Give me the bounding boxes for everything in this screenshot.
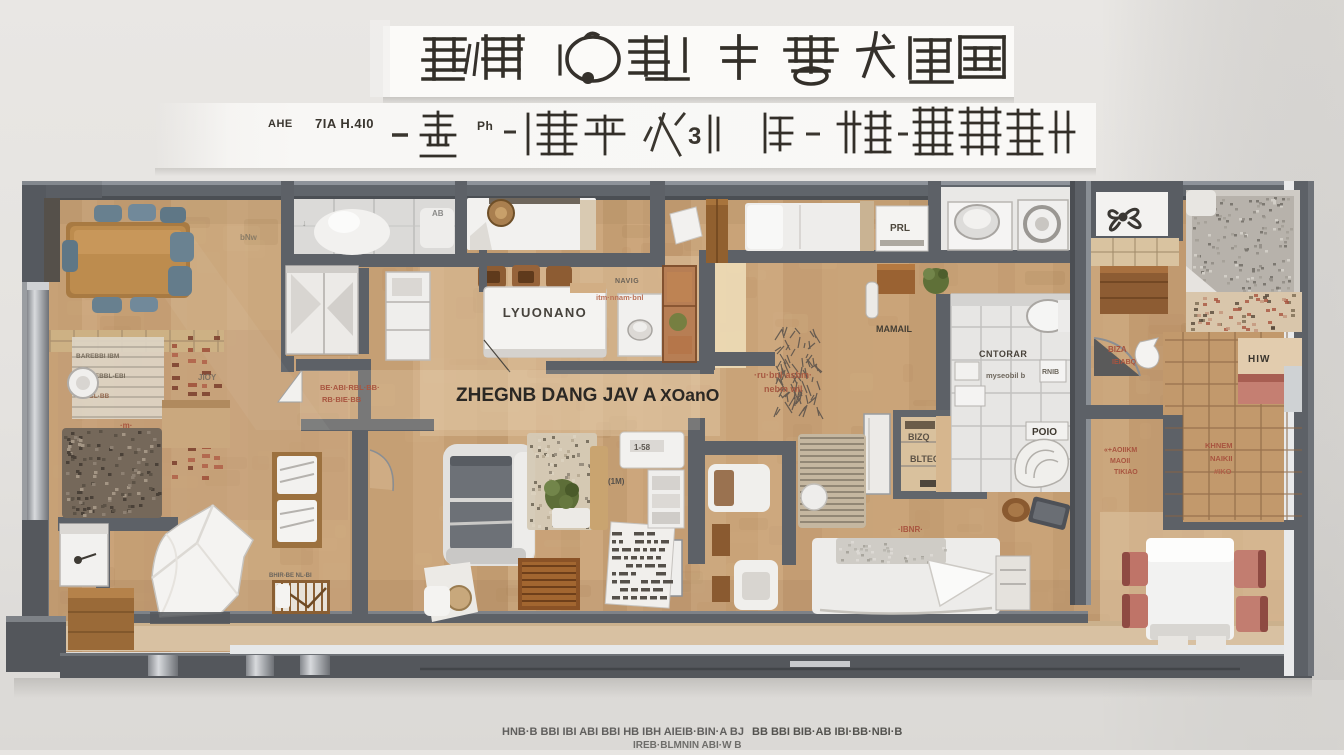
svg-text:nebm wil: nebm wil: [764, 384, 803, 394]
svg-text:·m·: ·m·: [120, 421, 132, 430]
svg-text:BE·ABI·RBL·BB·: BE·ABI·RBL·BB·: [320, 383, 380, 392]
svg-text:POIO: POIO: [1032, 427, 1057, 438]
svg-text:bNw: bNw: [240, 233, 258, 242]
svg-text:·ru·bnl·asbm·: ·ru·bnl·asbm·: [754, 370, 812, 380]
svg-text:1-58: 1-58: [634, 443, 651, 452]
svg-text:·IBNR·: ·IBNR·: [898, 525, 923, 534]
svg-text:PRL: PRL: [890, 223, 910, 234]
svg-text:JIOY: JIOY: [198, 373, 217, 382]
svg-text:↓: ↓: [302, 218, 307, 228]
svg-text:HNB·B BBI IBI ABI BBI HB IBH A: HNB·B BBI IBI ABI BBI HB IBH AIEIB·BIN·A…: [502, 726, 744, 738]
svg-text:RB·BIE·BB: RB·BIE·BB: [322, 395, 362, 404]
svg-text:AHE: AHE: [268, 118, 293, 130]
svg-text:IREB·BLMNIN ABI·W B: IREB·BLMNIN ABI·W B: [633, 740, 742, 750]
svg-text:KHNEM: KHNEM: [1205, 441, 1233, 450]
svg-text:IEIABQ: IEIABQ: [1112, 359, 1137, 366]
svg-text:BAREBBI IBM: BAREBBI IBM: [76, 353, 119, 360]
svg-text:BHIR-BE NL-BI: BHIR-BE NL-BI: [269, 573, 312, 579]
svg-text:#IKO: #IKO: [1214, 467, 1232, 476]
svg-text:NAVIG: NAVIG: [615, 278, 639, 285]
svg-text:MAOII: MAOII: [1110, 458, 1130, 465]
svg-text:«+AOIIKM: «+AOIIKM: [1104, 447, 1137, 454]
svg-text:(1M): (1M): [608, 477, 625, 486]
svg-text:itm·nnam·bnl: itm·nnam·bnl: [596, 293, 644, 302]
svg-text:3: 3: [688, 123, 701, 150]
svg-text:RNIB: RNIB: [1042, 369, 1059, 376]
svg-text:XOanO: XOanO: [660, 385, 719, 405]
svg-text:ZHEGNB DANG JAV A: ZHEGNB DANG JAV A: [456, 385, 657, 406]
svg-text:CNTORAR: CNTORAR: [979, 349, 1027, 359]
svg-text:NAIKII: NAIKII: [1210, 454, 1233, 463]
svg-text:HIW: HIW: [1248, 354, 1270, 365]
svg-text:BB BBI BIB·AB IBI·BB·NBI·B: BB BBI BIB·AB IBI·BB·NBI·B: [752, 726, 902, 738]
svg-text:BLTEO: BLTEO: [910, 454, 940, 464]
svg-text:LYUONANO: LYUONANO: [503, 305, 587, 320]
svg-text:myseobil b: myseobil b: [986, 371, 1026, 380]
svg-text:MAMAIL: MAMAIL: [876, 324, 912, 334]
svg-text:Ph: Ph: [477, 119, 493, 133]
svg-text:7IA H.4I0: 7IA H.4I0: [315, 116, 374, 131]
svg-text:BIZQ: BIZQ: [908, 432, 930, 442]
svg-text:BIZA: BIZA: [1108, 345, 1127, 354]
svg-text:AB: AB: [432, 209, 444, 218]
svg-text:TIKIAO: TIKIAO: [1114, 469, 1138, 476]
